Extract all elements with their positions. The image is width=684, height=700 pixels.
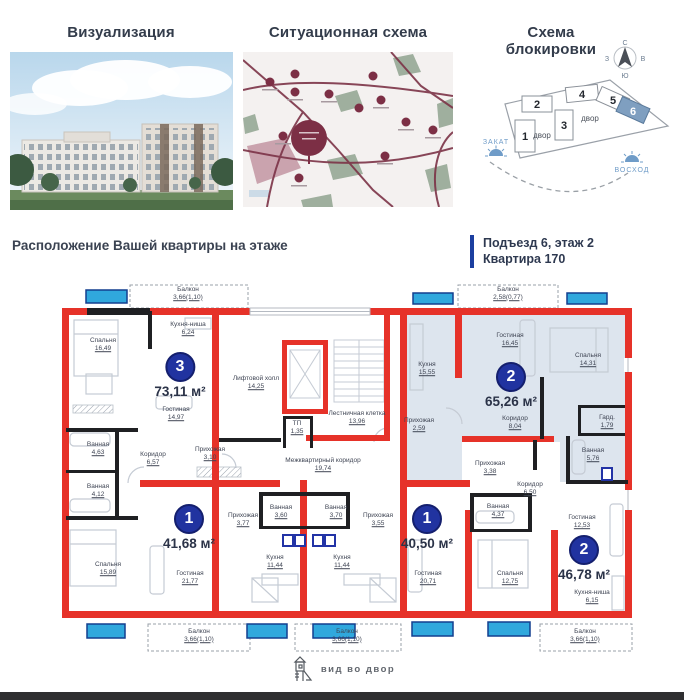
room-label: Гостиная12,53 <box>568 514 595 530</box>
room-label: Гостиная20,71 <box>414 570 441 586</box>
room-label: Ванная5,76 <box>582 447 604 463</box>
svg-text:6: 6 <box>630 106 636 118</box>
svg-text:4: 4 <box>579 89 586 101</box>
svg-text:С: С <box>622 40 627 47</box>
apartment-badge: 1 41,68 м² <box>163 504 215 551</box>
room-label: Спальня12,75 <box>497 570 523 586</box>
apartment-number: 2 <box>569 535 599 565</box>
apartment-badge: 3 73,11 м² <box>154 352 205 399</box>
floor-plan: Балкон3,66(1,10) Спальня16,49 Кухня-ниша… <box>0 278 684 658</box>
room-label: Ванная4,12 <box>87 483 109 499</box>
staircase <box>334 340 384 402</box>
svg-text:1: 1 <box>522 131 528 143</box>
room-label: Спальня14,31 <box>575 352 601 368</box>
room-label: Коридор6,50 <box>517 481 543 497</box>
apartment-location-info: Подъезд 6, этаж 2 Квартира 170 <box>470 235 594 268</box>
compass-icon: С Ю З В <box>605 40 646 80</box>
apartment-badge: 2 46,78 м² <box>558 535 610 582</box>
room-label: Балкон3,66(1,10) <box>173 286 203 302</box>
svg-text:ВОСХОД: ВОСХОД <box>614 167 649 174</box>
room-label: Кухня11,44 <box>266 554 283 570</box>
room-label: Балкон3,66(1,10) <box>332 628 362 644</box>
room-label: Прихожая3,55 <box>363 512 393 528</box>
brochure-page: Визуализация Ситуационная схема Схема бл… <box>0 0 684 700</box>
room-label: Кухня-ниша6,24 <box>170 321 206 337</box>
svg-text:двор: двор <box>533 131 551 140</box>
courtyard-view-label: вид во двор <box>321 664 395 675</box>
apartment-badge: 1 40,50 м² <box>401 504 453 551</box>
room-label: Спальня15,89 <box>95 561 121 577</box>
wardrobe-hatch <box>73 405 113 413</box>
apartment-area: 65,26 м² <box>485 394 537 409</box>
courtyard-view-note: вид во двор <box>0 656 684 682</box>
svg-text:5: 5 <box>610 95 616 107</box>
section-heading: Расположение Вашей квартиры на этаже <box>12 238 288 253</box>
room-label: Лифтовой холл14,25 <box>230 375 282 391</box>
room-label: Лестничная клетка13,96 <box>326 410 388 426</box>
room-label: Ванная4,37 <box>487 503 509 519</box>
room-label: Ванная3,60 <box>270 504 292 520</box>
room-label: Кухня11,44 <box>333 554 350 570</box>
room-label: Спальня16,49 <box>90 337 116 353</box>
room-label: Коридор8,04 <box>502 415 528 431</box>
sun-path-arc <box>490 162 628 192</box>
apartment-number: 3 <box>165 352 195 382</box>
room-label: Кухня-ниша6,15 <box>574 589 610 605</box>
apartment-badge: 2 65,26 м² <box>485 362 537 409</box>
bottom-bar <box>0 692 684 700</box>
room-label: Гостиная16,45 <box>496 332 523 348</box>
apartment-number: 1 <box>412 504 442 534</box>
room-label: Коридор6,57 <box>140 451 166 467</box>
svg-text:З: З <box>605 56 609 63</box>
situational-title: Ситуационная схема <box>269 24 427 41</box>
room-label: Межквартирный коридор19,74 <box>285 457 360 473</box>
elevator <box>290 350 320 398</box>
room-label: Гостиная14,97 <box>162 406 189 422</box>
room-label: Прихожая3,77 <box>228 512 258 528</box>
svg-text:3: 3 <box>561 120 567 132</box>
apartment-area: 73,11 м² <box>154 384 205 399</box>
room-label: Гард.1,79 <box>599 414 615 430</box>
apartment-number: 1 <box>174 504 204 534</box>
room-label: Прихожая3,10 <box>195 446 225 462</box>
apartment-area: 41,68 м² <box>163 536 215 551</box>
room-label: ТП1,35 <box>291 420 304 436</box>
apartment-number-line: Квартира 170 <box>483 251 594 267</box>
room-label: Прихожая2,59 <box>404 417 434 433</box>
svg-text:В: В <box>641 56 646 63</box>
apartment-area: 46,78 м² <box>558 567 610 582</box>
svg-text:Ю: Ю <box>621 73 628 80</box>
room-label: Гостиная21,77 <box>176 570 203 586</box>
svg-text:ЗАКАТ: ЗАКАТ <box>483 139 509 146</box>
room-label: Балкон3,66(1,10) <box>570 628 600 644</box>
apartment-number: 2 <box>496 362 526 392</box>
situational-map <box>243 52 453 207</box>
room-label: Ванная4,63 <box>87 441 109 457</box>
apartment-area: 40,50 м² <box>401 536 453 551</box>
room-label: Балкон3,66(1,10) <box>184 628 214 644</box>
room-label: Балкон2,58(0,77) <box>493 286 523 302</box>
svg-text:двор: двор <box>581 114 599 123</box>
visualization-title: Визуализация <box>67 24 175 41</box>
playground-icon <box>289 656 313 682</box>
room-label: Прихожая3,38 <box>475 460 505 476</box>
sunset-icon: ЗАКАТ <box>483 139 509 156</box>
sunrise-icon: ВОСХОД <box>614 151 649 174</box>
building-render-image <box>10 52 233 210</box>
entrance-floor-line: Подъезд 6, этаж 2 <box>483 235 594 251</box>
blocking-scheme: С Ю З В 1 2 3 4 5 6 двор двор <box>460 40 684 215</box>
room-label: Кухня15,55 <box>418 361 435 377</box>
accent-bar <box>470 235 474 268</box>
room-label: Ванная3,70 <box>325 504 347 520</box>
svg-text:2: 2 <box>534 99 540 111</box>
